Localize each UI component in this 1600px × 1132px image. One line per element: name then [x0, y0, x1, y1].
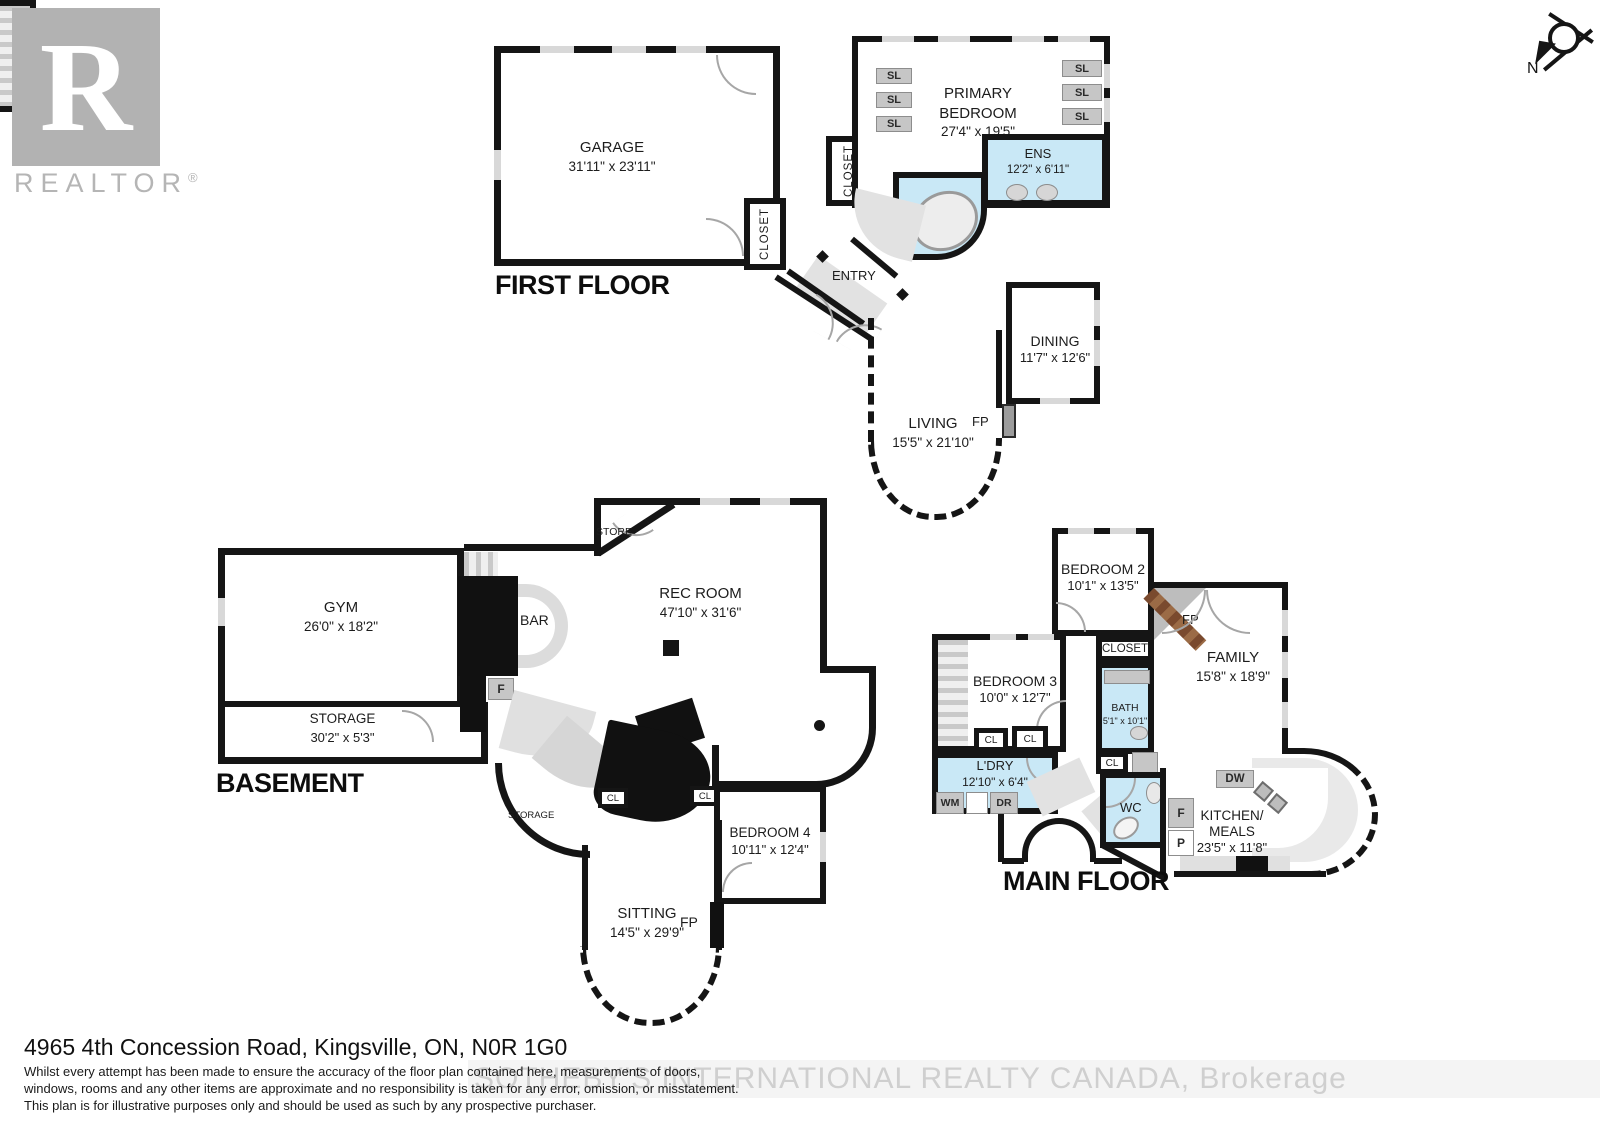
- window: [1094, 300, 1100, 326]
- bedroom4-label: BEDROOM 4 10'11" x 12'4": [718, 824, 822, 858]
- fridge-icon: F: [488, 678, 514, 700]
- window: [1104, 64, 1110, 88]
- wall: [1094, 858, 1122, 864]
- window: [1012, 36, 1044, 42]
- bar-counter: [458, 576, 518, 676]
- window: [700, 498, 730, 505]
- closet: CLOSET: [1096, 636, 1154, 662]
- floor-plan-page: R REALTOR® N GARAGE 31'11" x 23'11" CLOS…: [0, 0, 1600, 1132]
- wall: [712, 745, 719, 788]
- window: [1104, 98, 1110, 122]
- fireplace: [710, 902, 724, 948]
- wall: [1160, 768, 1166, 877]
- wall-post: [896, 288, 909, 301]
- primary-bedroom-label: PRIMARY BEDROOM 27'4" x 19'5": [908, 84, 1048, 141]
- basement-title: BASEMENT: [216, 768, 364, 799]
- dining-label: DINING 11'7" x 12'6": [1000, 332, 1110, 367]
- fireplace-label: FP: [972, 414, 989, 429]
- window: [1282, 702, 1288, 728]
- sink-icon: [1130, 726, 1148, 740]
- bar-label: BAR: [520, 612, 549, 628]
- realtor-logo-letter: R: [40, 23, 132, 151]
- skylight-chip: SL: [876, 92, 912, 108]
- garage-label: GARAGE 31'11" x 23'11": [522, 138, 702, 175]
- fireplace-label: FP: [680, 914, 698, 930]
- window: [1028, 634, 1054, 640]
- store-label: STORE: [596, 526, 632, 538]
- fireplace: [1002, 404, 1016, 438]
- closet-cl: CL: [974, 728, 1008, 752]
- disclaimer-line: This plan is for illustrative purposes o…: [24, 1098, 596, 1113]
- washing-machine-icon: WM: [936, 792, 964, 814]
- bedroom2-label: BEDROOM 2 10'1" x 13'5": [1048, 560, 1158, 595]
- property-address: 4965 4th Concession Road, Kingsville, ON…: [24, 1034, 567, 1061]
- door-arc: [1206, 590, 1250, 634]
- closet-cl: CL: [1012, 726, 1048, 752]
- wall: [464, 544, 598, 551]
- bar-counter: [460, 676, 486, 732]
- window: [760, 498, 790, 505]
- wc-label: WC: [1120, 800, 1142, 815]
- window: [990, 634, 1016, 640]
- entry-arch: [1022, 818, 1096, 862]
- bathtub-icon: [1104, 670, 1150, 684]
- kitchen-label: KITCHEN/ MEALS 23'5" x 11'8": [1167, 808, 1297, 856]
- support-column: [814, 720, 825, 731]
- sink-icon: [1006, 184, 1028, 201]
- skylight-chip: SL: [1062, 60, 1102, 77]
- window: [1040, 398, 1070, 404]
- window: [1110, 528, 1136, 534]
- window: [494, 150, 501, 180]
- rec-room-label: REC ROOM 47'10" x 31'6": [628, 584, 773, 621]
- main-floor-title: MAIN FLOOR: [1003, 866, 1169, 897]
- sitting-bay-window: [580, 946, 722, 1026]
- window: [676, 46, 706, 53]
- registered-trademark-icon: ®: [188, 170, 198, 185]
- cooktop-icon: [1236, 856, 1268, 871]
- window: [612, 46, 646, 53]
- closet-cl: CL: [1096, 752, 1128, 774]
- window: [218, 598, 225, 626]
- sink-icon: [1036, 184, 1058, 201]
- bedroom3-label: BEDROOM 3 10'0" x 12'7": [960, 672, 1070, 707]
- wall: [996, 330, 1002, 408]
- dishwasher-icon: DW: [1216, 770, 1254, 788]
- closet-lower: CLOSET: [744, 198, 786, 270]
- skylight-chip: SL: [1062, 108, 1102, 125]
- disclaimer-line: Whilst every attempt has been made to en…: [24, 1064, 700, 1079]
- disclaimer-line: windows, rooms and any other items are a…: [24, 1081, 739, 1096]
- window: [938, 36, 970, 42]
- realtor-logo-icon: R: [12, 8, 160, 166]
- support-post: [663, 640, 679, 656]
- storage-label: STORAGE 30'2" x 5'3": [250, 710, 435, 747]
- first-floor-title: FIRST FLOOR: [495, 270, 669, 301]
- window: [1282, 610, 1288, 636]
- dryer-icon: DR: [990, 792, 1018, 814]
- wall: [998, 814, 1004, 862]
- entry-label: ENTRY: [832, 268, 876, 283]
- storage-under-stairs-label: STORAGE: [508, 810, 554, 821]
- window: [1068, 528, 1094, 534]
- compass-north-label: N: [1527, 60, 1539, 78]
- wall: [1154, 582, 1288, 588]
- wall: [1002, 858, 1024, 864]
- family-label: FAMILY 15'8" x 18'9": [1163, 648, 1303, 685]
- window: [1058, 36, 1090, 42]
- ensuite-label: ENS 12'2" x 6'11": [995, 146, 1081, 178]
- kitchen-counter: [1180, 856, 1290, 871]
- wall: [1174, 871, 1326, 877]
- window: [882, 36, 914, 42]
- skylight-chip: SL: [876, 116, 912, 132]
- gym-label: GYM 26'0" x 18'2": [241, 598, 441, 635]
- closet-cl: CL: [598, 788, 628, 808]
- wall: [820, 498, 827, 672]
- skylight-chip: SL: [876, 68, 912, 84]
- window: [540, 46, 574, 53]
- realtor-logo-wordmark: REALTOR®: [14, 168, 198, 199]
- wall-rounded-corner: [792, 666, 876, 788]
- bath-label: BATH 5'1" x 10'1": [1096, 702, 1154, 727]
- laundry-sink-icon: [966, 792, 988, 814]
- skylight-chip: SL: [1062, 84, 1102, 101]
